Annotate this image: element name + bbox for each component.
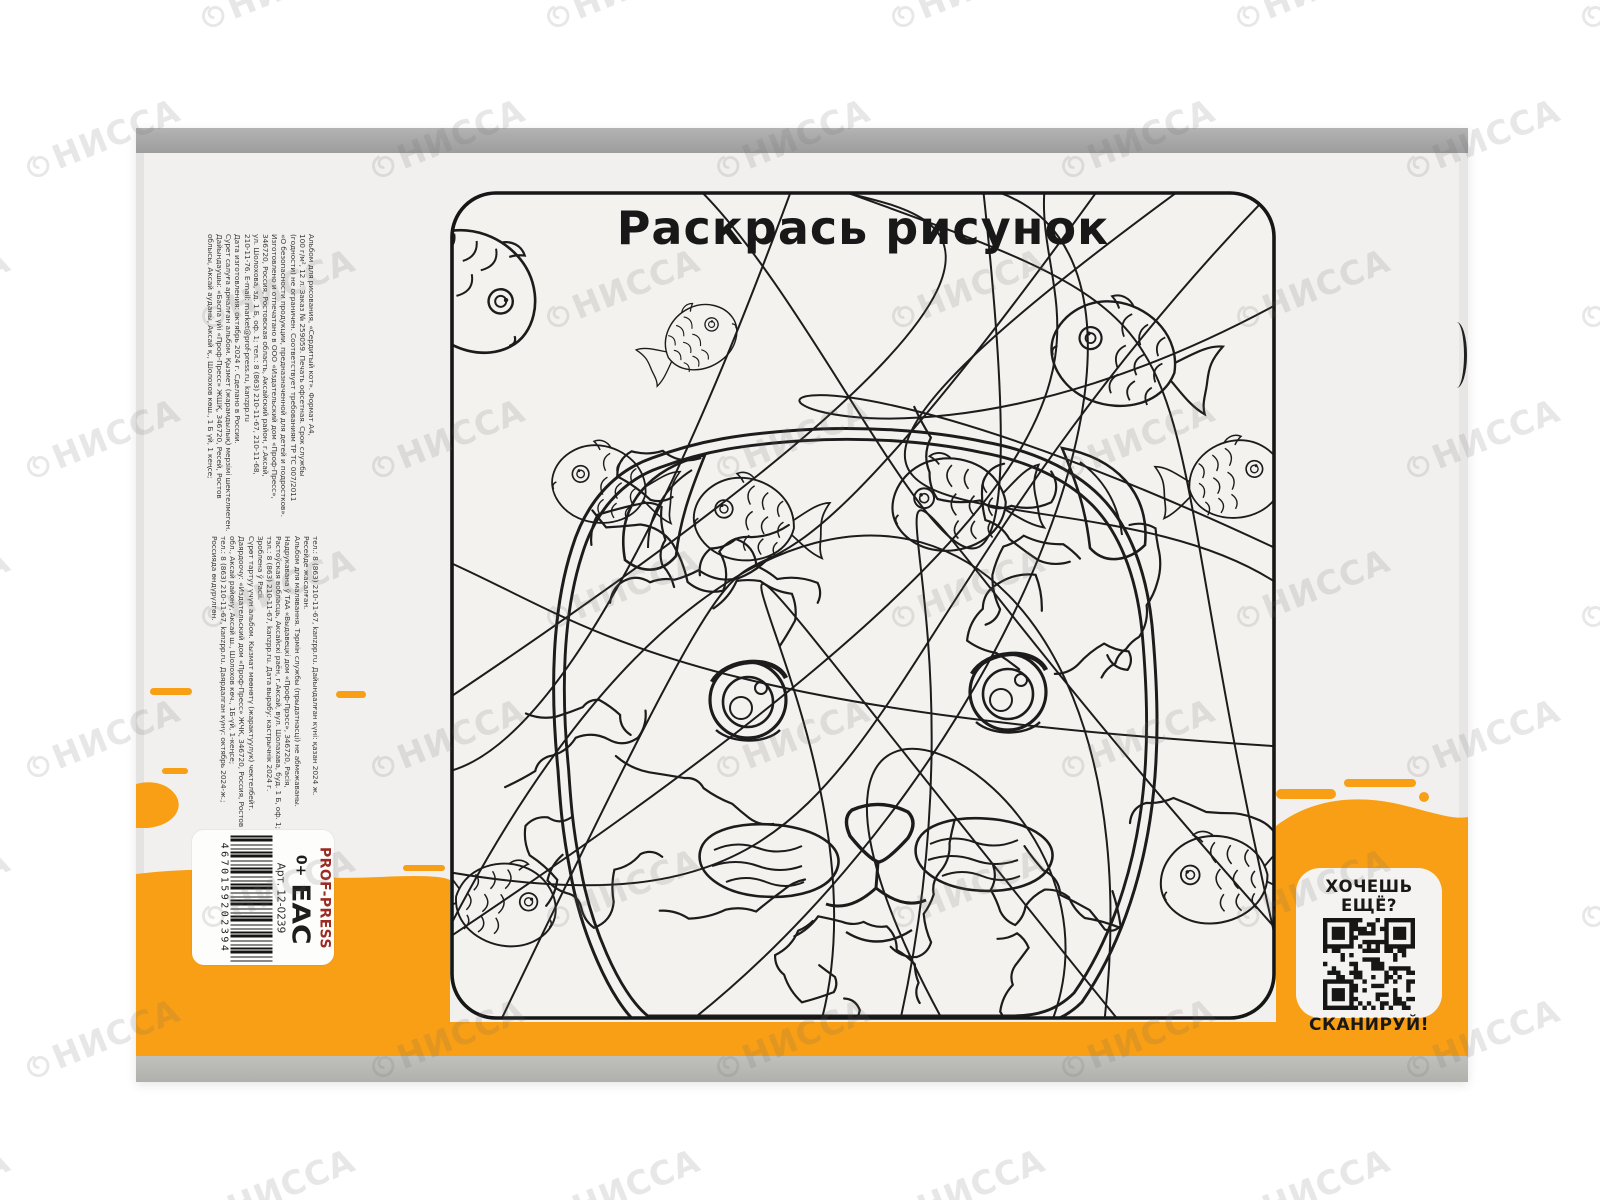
imprint-line: (годности) не ограничен. Соответствует т… xyxy=(288,234,297,526)
imprint-line: Надрукавана ў ТАА «Выдавецкі дом «Проф-П… xyxy=(283,536,292,828)
imprint-line: Сурет салуға арналған альбом. Қызмет (жа… xyxy=(224,234,233,526)
brand-logo: PROF-PRESS xyxy=(316,846,332,948)
qr-heading: ХОЧЕШЬ ЕЩЁ? xyxy=(1296,877,1442,915)
nissa-swirl-icon xyxy=(25,453,50,478)
nissa-watermark: НИССА xyxy=(539,0,706,38)
eac-mark: EAC xyxy=(286,883,315,944)
nissa-watermark: НИССА xyxy=(194,0,361,38)
cat-coloring-art xyxy=(450,191,1276,1020)
nissa-watermark: НИССА xyxy=(194,1141,361,1200)
nissa-swirl-icon xyxy=(1580,303,1600,328)
imprint-line: 346720, Россия, Ростовская область, Акса… xyxy=(261,234,270,526)
imprint-block-be-kg: тел.: 8 (863) 210-11-67, kanzpp.ru. Дайы… xyxy=(210,536,320,828)
imprint-line: тел.: 8 (863) 210-11-67, kanzpp.ru. Дайы… xyxy=(311,536,320,828)
nissa-watermark: НИССА xyxy=(0,0,16,38)
nissa-swirl-icon xyxy=(200,3,225,28)
imprint-line: тэл.: 8 (863) 210-11-67, kanzpp.ru. Дата… xyxy=(265,536,274,828)
nissa-swirl-icon xyxy=(1580,903,1600,928)
imprint-line: Альбом для малявання. Тэрмін службы (пры… xyxy=(292,536,301,828)
album-top-edge xyxy=(136,128,1468,153)
nissa-watermark: НИССА xyxy=(1574,841,1600,939)
imprint-line: Сүрөт тартуу үчүн альбом. Кызмат мөөнөтү… xyxy=(246,536,255,828)
nissa-watermark: НИССА xyxy=(539,1141,706,1200)
imprint-line: ул. Шолохова, зд. 1 Б, оф. 1; тел.: 8 (8… xyxy=(252,234,261,526)
age-rating-badge: 0+ xyxy=(293,854,309,875)
imprint-line: обл., Аксай району, Аксай ш., Шолохов кө… xyxy=(228,536,237,828)
imprint-line: Даярдоочу: «Издательский дом «Проф-Пресс… xyxy=(237,536,246,828)
imprint-block-ru-kz: Альбом для рисования, «Сердитый кот». Фо… xyxy=(204,234,316,526)
barcode-number: 4670159202394 xyxy=(218,842,229,953)
qr-code xyxy=(1323,918,1415,1010)
coloring-title: Раскрась рисунок xyxy=(450,201,1276,255)
product-photo: Раскрась рисунок Альбом для рисования, «… xyxy=(0,0,1600,1200)
nissa-swirl-icon xyxy=(25,753,50,778)
imprint-line: тел.: 8 (863) 210-11-67, kanzpp.ru. Даяр… xyxy=(219,536,228,828)
qr-caption: СКАНИРУЙ! xyxy=(1296,1015,1442,1035)
imprint-line: «О безопасности продукции, предназначенн… xyxy=(279,234,288,526)
imprint-line: Россияда өндүрүлгөн. xyxy=(210,536,219,828)
nissa-swirl-icon xyxy=(890,3,915,28)
barcode xyxy=(230,835,272,961)
album-right-edge xyxy=(1459,153,1468,1056)
imprint-line: Альбом для рисования, «Сердитый кот». Фо… xyxy=(307,234,316,526)
nissa-swirl-icon xyxy=(1580,603,1600,628)
nissa-watermark: НИССА xyxy=(1574,1141,1600,1200)
imprint-line: Ресейде жасалған. xyxy=(302,536,311,828)
nissa-watermark: НИССА xyxy=(1574,0,1600,38)
nissa-watermark: НИССА xyxy=(1229,1141,1396,1200)
imprint-line: облысы, Аксай ауданы, Аксай қ., Шолохов … xyxy=(206,234,215,526)
imprint-line: 210-11-76. E-mail: market@prof-press.ru,… xyxy=(242,234,251,526)
nissa-swirl-icon xyxy=(1235,3,1260,28)
nissa-watermark: НИССА xyxy=(1574,541,1600,639)
imprint-line: Растоўская вобласць, Аксайскі раён, г.Ак… xyxy=(274,536,283,828)
imprint-line: 100 г/м², 12 л. Заказ № 259059. Печать о… xyxy=(298,234,307,526)
nissa-swirl-icon xyxy=(545,3,570,28)
album-bottom-edge xyxy=(136,1056,1468,1082)
nissa-watermark: НИССА xyxy=(884,0,1051,38)
nissa-swirl-icon xyxy=(25,153,50,178)
imprint-line: Зроблена ў Расіі. xyxy=(256,536,265,828)
nissa-watermark: НИССА xyxy=(0,1141,16,1200)
nissa-watermark: НИССА xyxy=(884,1141,1051,1200)
nissa-watermark: НИССА xyxy=(1574,241,1600,339)
nissa-watermark: НИССА xyxy=(0,241,16,339)
imprint-line: Дайындаушы: «Баспа үйі «Проф-Пресс» ЖШҚ,… xyxy=(215,234,224,526)
qr-panel: ХОЧЕШЬ ЕЩЁ? СКАНИРУЙ! xyxy=(1296,868,1442,1018)
nissa-watermark: НИССА xyxy=(1229,0,1396,38)
article-number: Арт. 12-0239 xyxy=(274,862,286,933)
nissa-swirl-icon xyxy=(25,1053,50,1078)
nissa-watermark: НИССА xyxy=(0,841,16,939)
nissa-swirl-icon xyxy=(1580,3,1600,28)
imprint-line: Изготовлено и отпечатано в ООО «Издатель… xyxy=(270,234,279,526)
imprint-line: Дата изготовления: октябрь 2024 г. Сдела… xyxy=(233,234,242,526)
album-left-edge xyxy=(136,153,144,1056)
barcode-panel: PROF-PRESS 0+ EAC Арт. 12-0239 467015920… xyxy=(192,830,334,965)
nissa-watermark: НИССА xyxy=(0,541,16,639)
